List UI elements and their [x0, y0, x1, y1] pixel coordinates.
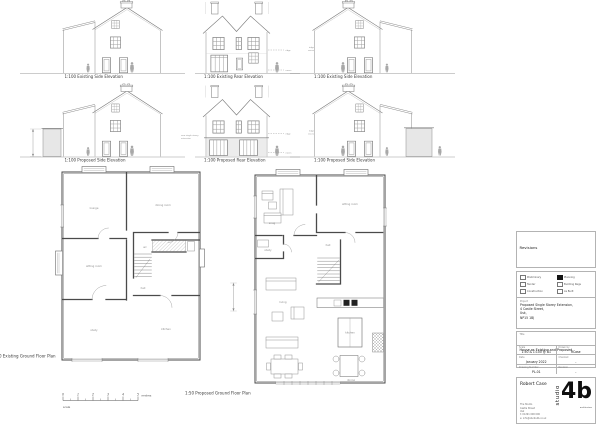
status-project-box: Preliminary Planning Tender Building Reg… — [516, 271, 596, 329]
drawing-canvas: 1:100 Existing Side Elevation ridge eave… — [0, 0, 600, 424]
drawing-sheet: 1:100 Existing Side Elevation ridge eave… — [0, 0, 600, 424]
elevation-existing-side-right: ridge eaves — [290, 0, 455, 73]
elevation-proposed-rear: ridge eaves — [195, 86, 300, 158]
revision-cell: Revision - — [556, 365, 596, 374]
room-label: snug — [269, 222, 276, 225]
caption-existing-side-right: 1:100 Existing Side Elevation — [314, 74, 373, 79]
address-line: e: info@studio4b.co.uk — [520, 417, 546, 420]
datum-label-ridge: ridge — [309, 130, 315, 133]
status-label: Planning — [564, 276, 575, 279]
caption-proposed-rear: 1:100 Proposed Rear Elevation — [204, 158, 266, 163]
revision-value: - — [559, 370, 594, 374]
status-label: Tender — [527, 283, 535, 286]
room-label: dining — [347, 378, 355, 382]
status-label: As Built — [564, 290, 573, 293]
annotation-extension-note: new single storey extension — [181, 134, 199, 140]
title-heading: Title — [520, 333, 593, 336]
project-line: NP15 1BJ — [520, 316, 592, 320]
caption-proposed-side-left: 1:100 Proposed Side Elevation — [65, 158, 126, 163]
checkbox-icon — [557, 282, 563, 288]
checkbox-icon — [520, 275, 526, 281]
plan-proposed-ground-floor: snug sitting room study hall living kitc… — [231, 170, 387, 385]
status-grid: Preliminary Planning Tender Building Reg… — [517, 272, 595, 296]
date-value: January 2022 — [519, 360, 554, 364]
status-item: Preliminary — [520, 275, 555, 281]
elevation-existing-rear: ridge eaves — [195, 2, 300, 74]
room-label: hall — [326, 243, 331, 247]
elevation-proposed-side-left — [20, 84, 185, 157]
caption-existing-rear: 1:100 Existing Rear Elevation — [204, 74, 263, 79]
status-item: Building Regs — [557, 282, 592, 288]
plan-existing-ground-floor: lounge dining room sitting room hall stu… — [56, 167, 205, 362]
datum-label-ridge: ridge — [286, 49, 292, 52]
checkbox-icon — [557, 275, 563, 281]
scale-unit: metres — [142, 393, 152, 397]
drawn-value: RCase — [559, 350, 594, 354]
status-label: Construction — [527, 290, 543, 293]
status-item: Construction — [520, 289, 555, 295]
scale-tick: 0 — [62, 392, 64, 396]
scale-bar: 0 1 2 3 4 5 metres scale — [62, 392, 152, 409]
scale-caption: scale — [63, 405, 70, 409]
datum-label-eaves: eaves — [286, 153, 292, 155]
scale-cell: Scale 1:50 & 1:100 @ A1 — [517, 346, 556, 355]
scale-tick: 2 — [92, 392, 94, 396]
room-label: lounge — [90, 206, 99, 210]
caption-plan-existing: 1:50 Existing Ground Floor Plan — [0, 354, 56, 359]
logo-vertical-text: studio — [555, 385, 561, 406]
status-label: Building Regs — [564, 283, 581, 286]
scale-tick: 3 — [107, 392, 109, 396]
elevation-existing-side-left — [20, 0, 185, 73]
room-label: dining room — [155, 203, 171, 207]
scale-value: 1:50 & 1:100 @ A1 — [519, 350, 554, 354]
drawing-number-cell: Drawing Number PL-01 — [517, 365, 556, 374]
status-item: Tender — [520, 282, 555, 288]
architect-address: The Studio Castle Street Usk t: 01291 00… — [520, 403, 546, 420]
room-label: wc — [143, 246, 147, 249]
title-block: Revisions Preliminary Planning Tender Bu… — [516, 231, 598, 424]
checkbox-icon — [520, 289, 526, 295]
drawing-info-box: Title House as Existing and Proposed Sca… — [516, 331, 596, 368]
studio4b-logo: studio 4b architecture — [555, 383, 592, 406]
room-label: kitchen — [161, 327, 171, 331]
datum-label-eaves: eaves — [308, 134, 314, 136]
scale-tick: 5 — [137, 392, 139, 396]
checked-value: - — [559, 360, 594, 364]
logo-main-text: 4b — [561, 383, 592, 401]
room-label: living — [280, 300, 287, 304]
scale-drawn-row: Scale 1:50 & 1:100 @ A1 Drawn by RCase — [517, 345, 595, 355]
datum-label-eaves: eaves — [286, 70, 292, 72]
number-revision-row: Drawing Number PL-01 Revision - — [517, 364, 595, 374]
architect-box: Robert Case The Studio Castle Street Usk… — [516, 377, 596, 424]
room-label: sitting room — [86, 264, 102, 268]
project-section: Project Proposed Single Storey Extension… — [517, 297, 595, 321]
note-line2: extension — [181, 137, 191, 140]
room-label: study — [90, 328, 98, 332]
drawn-cell: Drawn by RCase — [556, 346, 596, 355]
caption-existing-side-left: 1:100 Existing Side Elevation — [65, 74, 124, 79]
status-item: Planning — [557, 275, 592, 281]
revisions-label: Revisions — [520, 245, 538, 250]
checkbox-icon — [520, 282, 526, 288]
datum-label-eaves: eaves — [308, 50, 314, 52]
status-item: As Built — [557, 289, 592, 295]
elevation-proposed-side-right: ridge eaves — [290, 84, 455, 157]
datum-label-ridge: ridge — [286, 133, 292, 136]
room-label: study — [264, 248, 272, 252]
caption-plan-proposed: 1:50 Proposed Ground Floor Plan — [185, 391, 251, 396]
datum-label-ridge: ridge — [309, 46, 315, 49]
checked-cell: Checked - — [556, 355, 596, 364]
status-label: Preliminary — [527, 276, 541, 279]
drawing-number: PL-01 — [519, 370, 554, 374]
caption-proposed-side-right: 1:100 Proposed Side Elevation — [314, 158, 375, 163]
revisions-box: Revisions — [516, 231, 596, 268]
checkbox-icon — [557, 289, 563, 295]
scale-tick: 4 — [122, 392, 124, 396]
room-label: hall — [141, 286, 146, 290]
drawing-title-cell: Title House as Existing and Proposed — [517, 332, 595, 345]
room-label: sitting room — [342, 202, 358, 206]
room-label: kitchen — [345, 331, 355, 335]
scale-tick: 1 — [77, 392, 79, 396]
architect-name: Robert Case — [520, 382, 547, 387]
date-cell: Date January 2022 — [517, 355, 556, 364]
logo-sub-text: architecture — [580, 407, 592, 409]
date-checked-row: Date January 2022 Checked - — [517, 354, 595, 364]
note-line1: new single storey — [181, 134, 199, 137]
